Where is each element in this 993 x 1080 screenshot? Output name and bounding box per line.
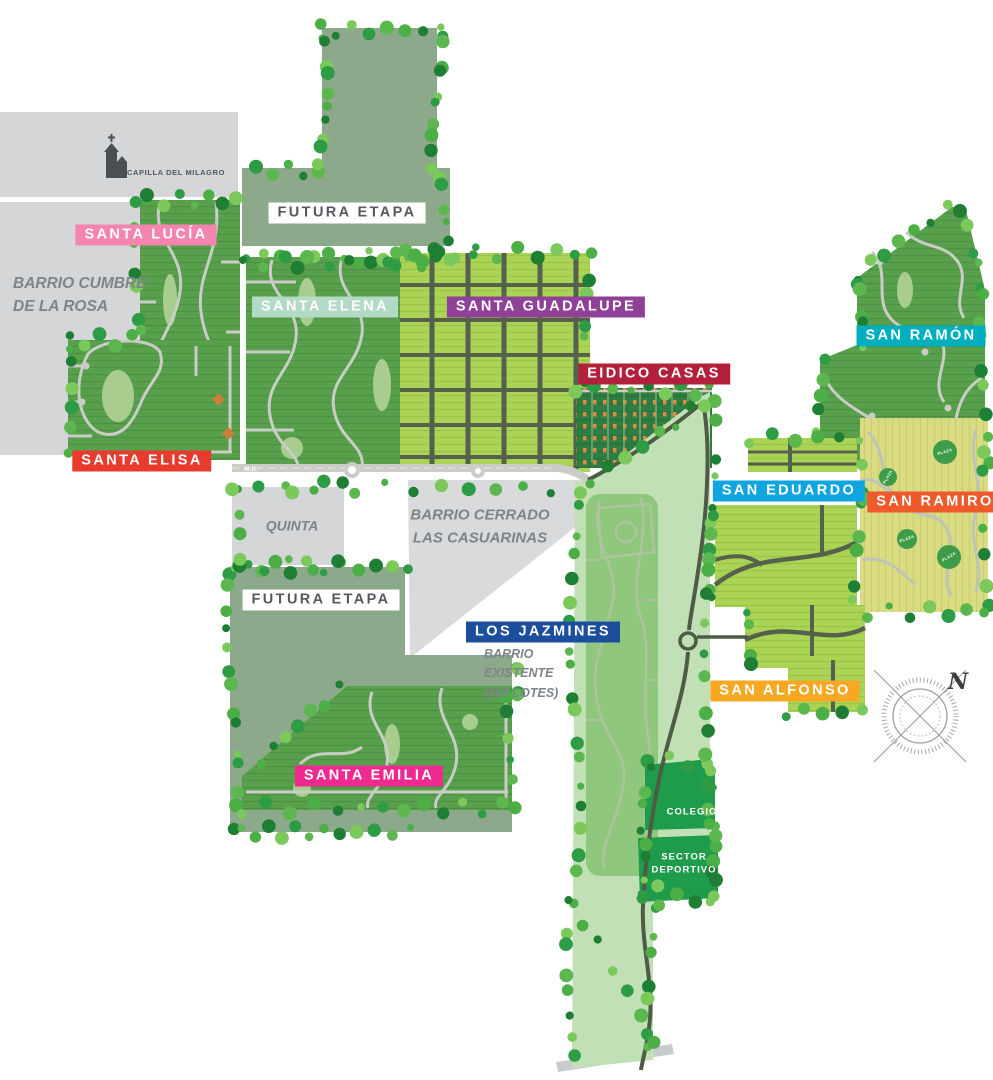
label-san-eduardo[interactable]: SAN EDUARDO — [713, 481, 865, 502]
label-santa-lucia[interactable]: SANTA LUCÍA — [75, 225, 216, 246]
label-colegio: COLEGIO — [667, 805, 718, 818]
zone-santa-elisa — [68, 340, 240, 455]
compass-north-label: N — [948, 669, 968, 695]
label-barrio-existente: BARRIO EXISTENTE (504 LOTES) — [484, 645, 558, 703]
label-santa-elisa[interactable]: SANTA ELISA — [72, 451, 211, 472]
label-las-casuarinas: BARRIO CERRADO LAS CASUARINAS — [410, 505, 549, 550]
zone-santa-guadalupe — [400, 253, 590, 472]
label-capilla: CAPILLA DEL MILAGRO — [127, 168, 225, 177]
label-futura-etapa-2: FUTURA ETAPA — [243, 590, 400, 611]
label-santa-emilia[interactable]: SANTA EMILIA — [295, 766, 443, 787]
main-road: M.D. — [232, 464, 588, 480]
label-futura-etapa-1: FUTURA ETAPA — [269, 203, 426, 224]
zone-san-eduardo — [715, 438, 857, 607]
label-santa-elena[interactable]: SANTA ELENA — [252, 297, 398, 318]
zone-san-ramiro: PLAZA PLAZA PLAZA PLAZA — [860, 418, 988, 612]
zone-los-jazmines — [572, 392, 710, 1068]
label-eidico-casas[interactable]: EIDICO CASAS — [578, 364, 730, 385]
label-san-ramon[interactable]: SAN RAMÓN — [856, 326, 985, 347]
road-marker-label: M.D. — [244, 467, 259, 473]
label-quinta: QUINTA — [266, 516, 319, 537]
label-santa-guadalupe[interactable]: SANTA GUADALUPE — [447, 297, 645, 318]
masterplan-map: PLAZA PLAZA PLAZA PLAZA — [0, 0, 993, 1080]
label-barrio-cumbre: BARRIO CUMBRE DE LA ROSA — [13, 272, 146, 319]
label-san-alfonso[interactable]: SAN ALFONSO — [710, 681, 859, 702]
label-san-ramiro[interactable]: SAN RAMIRO — [867, 492, 993, 513]
label-sector-deportivo: SECTOR DEPORTIVO — [652, 851, 717, 878]
zone-capilla-block — [0, 112, 238, 197]
label-los-jazmines[interactable]: LOS JAZMINES — [466, 622, 620, 643]
